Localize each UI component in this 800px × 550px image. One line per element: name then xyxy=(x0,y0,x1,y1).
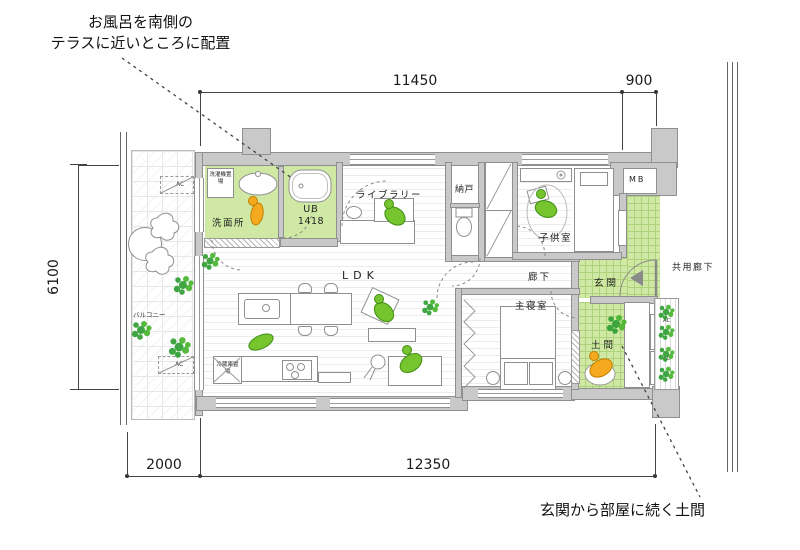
dining-chair xyxy=(298,283,312,293)
ac-label-strip: AC xyxy=(663,318,671,324)
master-pillow xyxy=(504,362,528,385)
bath-annotation-line1: お風呂を南側の xyxy=(88,13,193,31)
kids-window xyxy=(522,154,608,165)
doma-annotation: 玄関から部屋に続く土間 xyxy=(540,500,796,521)
nightstand xyxy=(486,371,500,385)
dining-chair xyxy=(298,326,312,336)
master-pillow xyxy=(529,362,553,385)
library-window xyxy=(350,154,435,165)
entrance-label: 玄関 xyxy=(594,275,619,289)
library-desk xyxy=(374,198,414,222)
fridge-space-label: 冷蔵庫置場 xyxy=(215,362,240,375)
wall-top-column xyxy=(242,128,271,155)
ldk-window-west xyxy=(194,256,204,390)
burner xyxy=(291,371,299,379)
bath-label-1: UB xyxy=(296,204,326,215)
washer-space-label: 洗濯機置場 xyxy=(209,172,232,185)
bedroom-window xyxy=(478,389,563,398)
wall-wash-bath xyxy=(278,166,284,238)
burner xyxy=(297,363,305,371)
burner xyxy=(286,363,294,371)
bath-annotation-line2: テラスに近いところに配置 xyxy=(51,34,231,52)
dining-chair xyxy=(324,283,338,293)
wall-bottom-doma xyxy=(571,388,661,400)
dim-line-left xyxy=(78,165,79,390)
meter-box-label: MB xyxy=(629,175,645,184)
tv-board xyxy=(368,328,416,342)
dim-bottom-main: 12350 xyxy=(395,457,461,473)
dim-top-right: 900 xyxy=(618,73,660,89)
counter-extension xyxy=(318,372,351,383)
bath-area xyxy=(284,166,336,238)
service-balcony xyxy=(654,298,679,390)
dim-bottom-left: 2000 xyxy=(138,457,190,473)
storage-wc-floor xyxy=(450,162,480,260)
balcony-table xyxy=(128,227,162,261)
bath-label-2: 1418 xyxy=(294,216,328,227)
washroom-sill xyxy=(204,238,280,248)
doma-sill xyxy=(571,330,580,384)
bath-annotation: お風呂を南側の テラスに近いところに配置 xyxy=(28,12,253,54)
wall-kids-south xyxy=(512,252,622,260)
doma-closet xyxy=(624,302,650,388)
shoe-cabinet xyxy=(618,210,627,246)
corridor-edge-line xyxy=(727,62,728,472)
library-counter xyxy=(340,220,415,244)
master-bedroom-label: 主寝室 xyxy=(515,298,548,312)
ac-label-strip: AC xyxy=(663,356,671,362)
dim-top-main: 11450 xyxy=(365,73,465,89)
ldk-label: LDK xyxy=(342,269,379,282)
wall-corner-se xyxy=(652,386,680,418)
dining-table xyxy=(290,293,352,325)
washroom-window xyxy=(194,178,204,232)
kids-pillow xyxy=(580,172,608,186)
wall-bath-south xyxy=(280,238,338,247)
shared-corridor-label: 共用廊下 xyxy=(672,260,714,273)
nightstand xyxy=(558,371,572,385)
balcony-label: バルコニー xyxy=(133,309,165,319)
ac-label-bottom: AC xyxy=(175,361,183,368)
storage-label: 納戸 xyxy=(455,182,474,195)
washroom-label: 洗面所 xyxy=(212,215,245,229)
dim-line-top xyxy=(200,92,656,93)
library-chair xyxy=(346,206,362,219)
dim-left-side: 6100 xyxy=(46,251,62,303)
sofa xyxy=(388,356,442,386)
library-label: ライブラリー xyxy=(356,187,422,201)
dim-line-bottom xyxy=(127,476,655,477)
doma-label: 土間 xyxy=(591,337,616,351)
island-faucet xyxy=(262,304,270,312)
wall-bedroom-west xyxy=(455,288,462,398)
wall-storage-west xyxy=(445,162,452,262)
kids-desk xyxy=(520,168,572,182)
balcony-rail-line xyxy=(120,132,121,425)
dining-chair xyxy=(324,326,338,336)
entrance-direction-arrow xyxy=(630,270,643,286)
ac-label-top: AC xyxy=(176,181,184,188)
floor-plan: お風呂を南側の テラスに近いところに配置 玄関から部屋に続く土間 11450 9… xyxy=(0,0,800,550)
ldk-window-south2 xyxy=(330,398,450,408)
wall-storage-wc xyxy=(450,203,480,208)
wall-wc-east xyxy=(478,162,485,262)
kids-room-label: 子供室 xyxy=(539,230,572,244)
wall-bedroom-north xyxy=(455,288,580,295)
ldk-window-south1 xyxy=(216,398,316,408)
hallway-label: 廊下 xyxy=(528,269,551,283)
